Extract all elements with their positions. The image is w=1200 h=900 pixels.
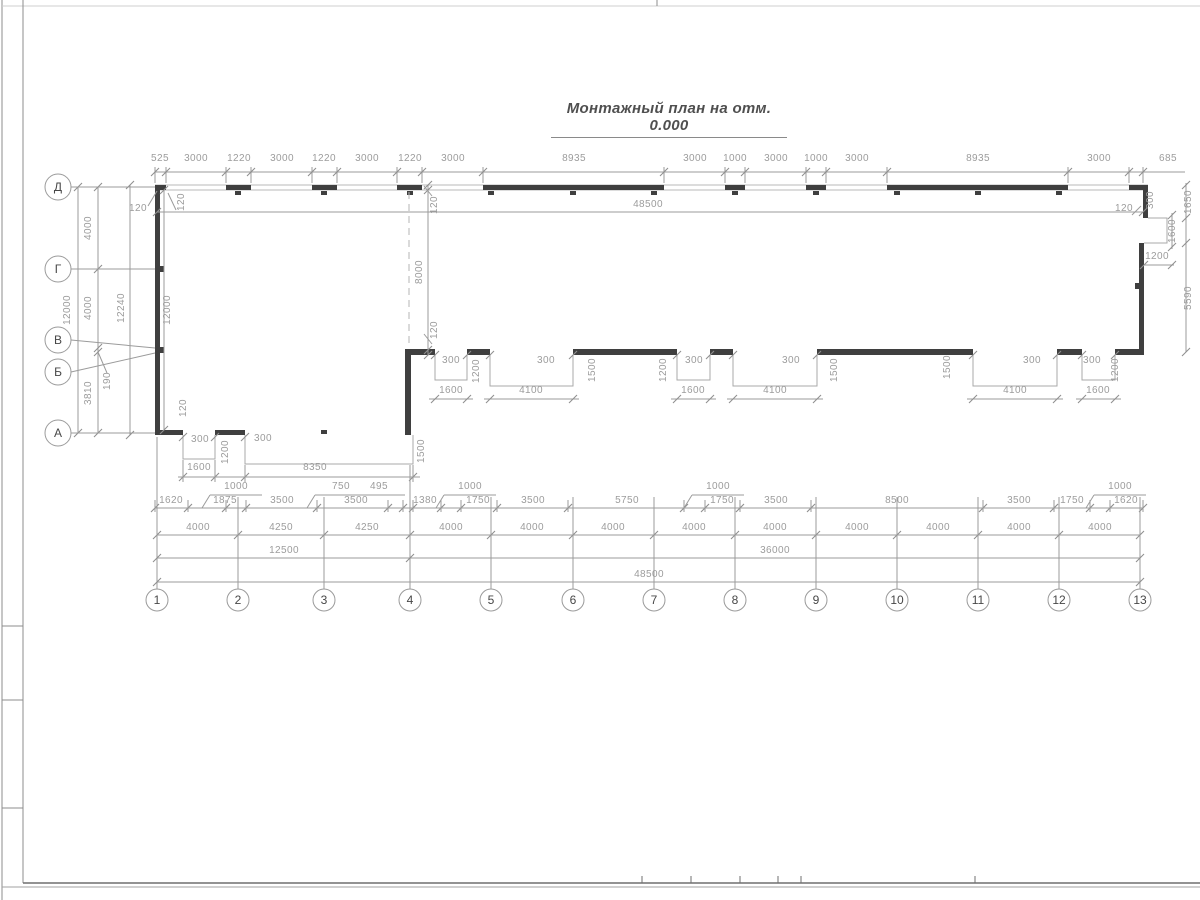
- drawing-title: Монтажный план на отм. 0.000: [551, 100, 787, 138]
- dim-label: 4000: [186, 522, 210, 533]
- dim-label: 5590: [1183, 286, 1194, 310]
- dim-label: 3000: [441, 153, 465, 164]
- dim-label: 4000: [1007, 522, 1031, 533]
- col-axis-bubble-4: 4: [399, 589, 421, 611]
- dim-label: 1875: [213, 495, 237, 506]
- dim-label: 300: [782, 355, 800, 366]
- svg-text:3: 3: [321, 593, 328, 607]
- dim-label: 3000: [845, 153, 869, 164]
- dim-label: 120: [429, 196, 440, 214]
- dim-label: 1000: [804, 153, 828, 164]
- dim-label: 3000: [683, 153, 707, 164]
- svg-text:Г: Г: [55, 262, 62, 276]
- dim-label: 48500: [633, 199, 663, 210]
- dim-label: 4100: [1003, 385, 1027, 396]
- row-axis-bubble-Д: Д: [45, 174, 71, 200]
- dim-label: 525: [151, 153, 169, 164]
- row-axis-bubble-Б: Б: [45, 359, 71, 385]
- dim-label: 1380: [413, 495, 437, 506]
- svg-text:8: 8: [732, 593, 739, 607]
- col-axis-bubble-5: 5: [480, 589, 502, 611]
- row-axis-bubble-А: А: [45, 420, 71, 446]
- col-axis-bubble-1: 1: [146, 589, 168, 611]
- svg-text:12: 12: [1052, 593, 1066, 607]
- svg-text:9: 9: [813, 593, 820, 607]
- dim-label: 1500: [942, 355, 953, 379]
- dim-label: 300: [442, 355, 460, 366]
- dim-label: 4000: [845, 522, 869, 533]
- dim-label: 685: [1159, 153, 1177, 164]
- dim-label: 300: [1023, 355, 1041, 366]
- svg-text:Д: Д: [54, 180, 62, 194]
- dim-label: 4000: [763, 522, 787, 533]
- dim-label: 4100: [763, 385, 787, 396]
- dim-label: 1200: [1110, 358, 1121, 382]
- dim-label: 3500: [344, 495, 368, 506]
- dim-label: 1750: [1060, 495, 1084, 506]
- dim-label: 8935: [966, 153, 990, 164]
- svg-text:В: В: [54, 333, 62, 347]
- dim-label: 120: [176, 193, 187, 211]
- svg-text:11: 11: [972, 593, 985, 607]
- dim-label: 1000: [458, 481, 482, 492]
- dim-label: 8350: [303, 462, 327, 473]
- dim-label: 1600: [681, 385, 705, 396]
- dim-label: 120: [429, 321, 440, 339]
- col-axis-bubble-10: 10: [886, 589, 908, 611]
- dim-label: 1750: [466, 495, 490, 506]
- dim-label: 1000: [723, 153, 747, 164]
- dim-label: 4000: [1088, 522, 1112, 533]
- dim-label: 4000: [520, 522, 544, 533]
- dim-label: 3500: [764, 495, 788, 506]
- dim-label: 8500: [885, 495, 909, 506]
- col-axis-bubble-6: 6: [562, 589, 584, 611]
- dim-label: 300: [1145, 191, 1156, 209]
- dim-label: 4000: [682, 522, 706, 533]
- drawing-sheet: Монтажный план на отм. 0.000 52530001220…: [0, 0, 1200, 900]
- dim-label: 1500: [829, 358, 840, 382]
- dim-label: 1000: [706, 481, 730, 492]
- dim-label: 300: [1083, 355, 1101, 366]
- dim-label: 1000: [224, 481, 248, 492]
- dim-label: 300: [685, 355, 703, 366]
- dim-label: 3000: [1087, 153, 1111, 164]
- svg-text:6: 6: [570, 593, 577, 607]
- dim-label: 1200: [220, 440, 231, 464]
- col-axis-bubble-8: 8: [724, 589, 746, 611]
- dim-label: 3000: [355, 153, 379, 164]
- dim-label: 4000: [601, 522, 625, 533]
- dim-label: 1620: [159, 495, 183, 506]
- dim-label: 120: [129, 203, 147, 214]
- dim-label: 3500: [270, 495, 294, 506]
- dim-label: 1200: [1145, 251, 1169, 262]
- dim-label: 1200: [471, 359, 482, 383]
- dim-label: 1600: [1167, 219, 1178, 243]
- dim-label: 48500: [634, 569, 664, 580]
- svg-text:Б: Б: [54, 365, 62, 379]
- dim-label: 3500: [1007, 495, 1031, 506]
- dim-label: 120: [178, 399, 189, 417]
- dim-label: 12240: [116, 293, 127, 323]
- dim-label: 120: [1115, 203, 1133, 214]
- col-axis-bubble-2: 2: [227, 589, 249, 611]
- dim-label: 190: [102, 372, 113, 390]
- dim-label: 1650: [1183, 190, 1194, 214]
- dim-label: 1220: [312, 153, 336, 164]
- dim-label: 1750: [710, 495, 734, 506]
- svg-text:7: 7: [651, 593, 658, 607]
- dim-label: 1200: [658, 358, 669, 382]
- dim-label: 5750: [615, 495, 639, 506]
- dim-label: 1620: [1114, 495, 1138, 506]
- dim-label: 4000: [926, 522, 950, 533]
- dim-label: 1000: [1108, 481, 1132, 492]
- dim-label: 12500: [269, 545, 299, 556]
- svg-text:4: 4: [407, 593, 414, 607]
- dim-label: 300: [254, 433, 272, 444]
- dim-label: 12000: [62, 295, 73, 325]
- dim-label: 1600: [439, 385, 463, 396]
- col-axis-bubble-11: 11: [967, 589, 989, 611]
- col-axis-bubble-7: 7: [643, 589, 665, 611]
- dim-label: 3810: [83, 381, 94, 405]
- dim-label: 1600: [187, 462, 211, 473]
- dim-label: 1220: [398, 153, 422, 164]
- dim-label: 1220: [227, 153, 251, 164]
- dim-label: 495: [370, 481, 388, 492]
- svg-text:2: 2: [235, 593, 242, 607]
- dim-label: 300: [537, 355, 555, 366]
- svg-text:5: 5: [488, 593, 495, 607]
- dim-label: 1500: [416, 439, 427, 463]
- svg-text:13: 13: [1133, 593, 1147, 607]
- dim-label: 4250: [269, 522, 293, 533]
- svg-text:1: 1: [154, 593, 161, 607]
- dim-label: 8000: [414, 260, 425, 284]
- dim-label: 300: [191, 434, 209, 445]
- col-axis-bubble-9: 9: [805, 589, 827, 611]
- ramp-outlines: [183, 218, 1167, 464]
- dimension-labels: 5253000122030001220300012203000893530001…: [62, 153, 1194, 580]
- dim-label: 4250: [355, 522, 379, 533]
- row-axis-bubble-В: В: [45, 327, 71, 353]
- dim-label: 8935: [562, 153, 586, 164]
- col-axis-bubble-13: 13: [1129, 589, 1151, 611]
- svg-text:А: А: [54, 426, 62, 440]
- dim-label: 4000: [83, 216, 94, 240]
- dim-label: 4000: [83, 296, 94, 320]
- dim-label: 1500: [587, 358, 598, 382]
- col-axis-bubble-12: 12: [1048, 589, 1070, 611]
- dim-label: 36000: [760, 545, 790, 556]
- row-axis-bubble-Г: Г: [45, 256, 71, 282]
- walls: [155, 185, 1148, 435]
- dim-label: 4100: [519, 385, 543, 396]
- dim-label: 12000: [162, 295, 173, 325]
- dim-label: 3000: [270, 153, 294, 164]
- dim-label: 4000: [439, 522, 463, 533]
- dim-label: 3000: [764, 153, 788, 164]
- svg-text:10: 10: [890, 593, 904, 607]
- dim-label: 3500: [521, 495, 545, 506]
- dim-label: 1600: [1086, 385, 1110, 396]
- dim-label: 3000: [184, 153, 208, 164]
- col-axis-bubble-3: 3: [313, 589, 335, 611]
- dim-label: 750: [332, 481, 350, 492]
